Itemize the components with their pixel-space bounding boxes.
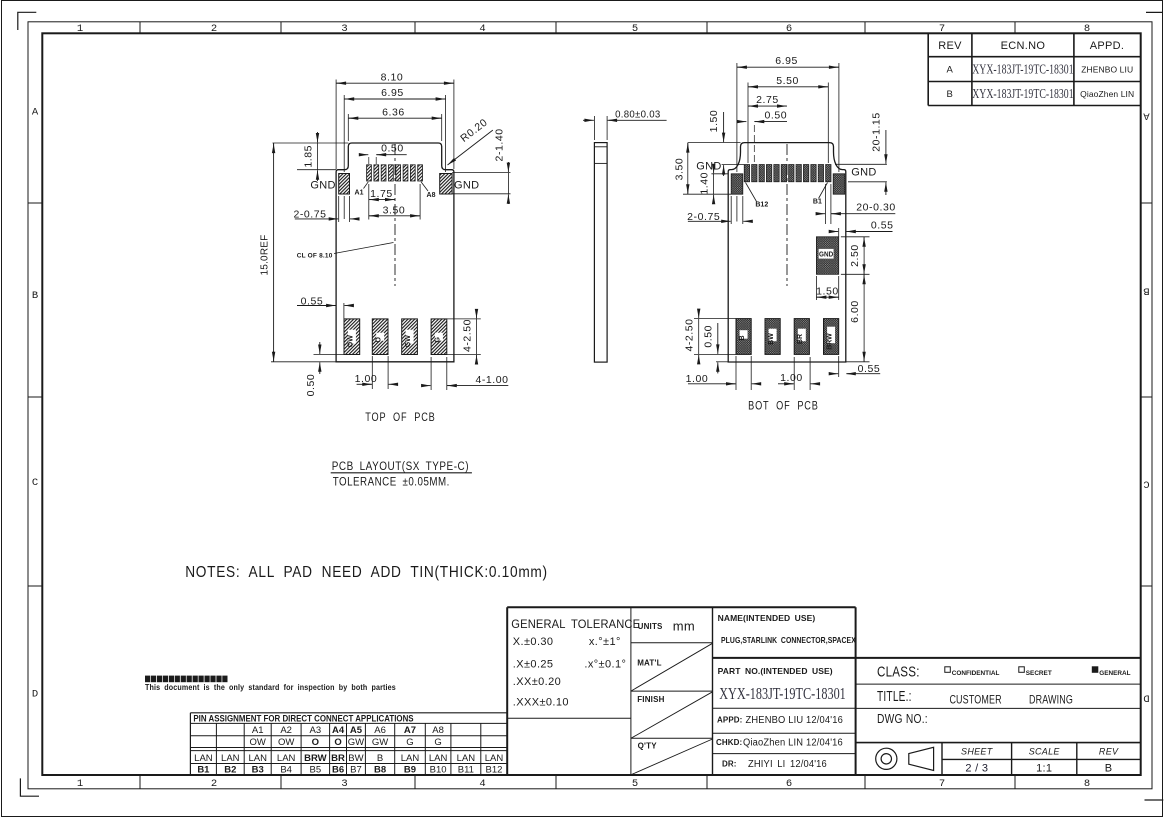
svg-text:BRW: BRW [304, 753, 327, 764]
svg-text:NOTES: ALL PAD NEED ADD TIN(TH: NOTES: ALL PAD NEED ADD TIN(THICK:0.10mm… [185, 564, 548, 581]
svg-text:A6: A6 [374, 725, 386, 736]
svg-text:A1: A1 [252, 725, 264, 736]
svg-text:B: B [32, 290, 38, 302]
svg-text:.X±0.25: .X±0.25 [513, 659, 554, 671]
svg-text:MAT'L: MAT'L [637, 659, 662, 668]
svg-text:4-2.50: 4-2.50 [461, 319, 473, 352]
svg-text:A5: A5 [350, 725, 363, 736]
svg-text:BR: BR [331, 753, 345, 764]
svg-text:B3: B3 [252, 765, 264, 776]
svg-text:GW: GW [348, 737, 364, 748]
svg-text:0.50: 0.50 [381, 142, 404, 154]
svg-text:B: B [377, 753, 383, 764]
svg-text:LAN: LAN [194, 753, 213, 764]
svg-text:PIN ASSIGNMENT FOR DIRECT CONN: PIN ASSIGNMENT FOR DIRECT CONNECT APPLIC… [193, 713, 413, 724]
svg-text:1.75: 1.75 [370, 188, 393, 200]
svg-text:This document is the only stan: This document is the only standard for i… [145, 683, 396, 692]
svg-text:B7: B7 [350, 765, 362, 776]
svg-text:G: G [434, 336, 441, 342]
svg-text:LAN: LAN [457, 753, 476, 764]
svg-text:SHEET: SHEET [961, 746, 994, 756]
svg-text:LAN: LAN [429, 753, 448, 764]
svg-text:1.50: 1.50 [816, 286, 839, 298]
svg-text:LAN: LAN [401, 753, 420, 764]
svg-text:G: G [406, 737, 413, 748]
svg-text:2-1.40: 2-1.40 [493, 128, 505, 161]
svg-text:3.50: 3.50 [674, 158, 686, 181]
svg-text:3: 3 [341, 23, 347, 35]
svg-text:CL OF 8.10: CL OF 8.10 [297, 252, 333, 259]
svg-text:4: 4 [479, 23, 485, 35]
svg-text:GENERAL: GENERAL [1099, 670, 1130, 677]
svg-text:A7: A7 [404, 725, 416, 736]
svg-text:7: 7 [939, 23, 945, 35]
svg-text:TOLERANCE ±0.05MM.: TOLERANCE ±0.05MM. [333, 476, 450, 489]
svg-text:B12: B12 [755, 201, 768, 208]
svg-text:GND: GND [851, 167, 876, 179]
svg-text:A3: A3 [310, 725, 322, 736]
svg-text:BW: BW [348, 753, 363, 764]
svg-text:B: B [1143, 285, 1149, 297]
svg-text:CUSTOMER: CUSTOMER [949, 694, 1001, 706]
svg-text:mm: mm [673, 619, 695, 634]
svg-text:4-1.00: 4-1.00 [475, 374, 508, 386]
svg-text:CHKD:: CHKD: [716, 738, 742, 747]
svg-text:BW: BW [768, 333, 775, 345]
svg-text:ZHIYI LI 12/04'16: ZHIYI LI 12/04'16 [748, 758, 827, 770]
svg-text:6: 6 [786, 778, 792, 790]
svg-text:3.50: 3.50 [383, 204, 406, 216]
svg-text:1: 1 [77, 23, 83, 35]
svg-text:B10: B10 [430, 765, 447, 776]
svg-text:BOT OF PCB: BOT OF PCB [748, 399, 819, 412]
svg-text:GW: GW [405, 335, 412, 347]
svg-text:APPD:: APPD: [717, 716, 742, 725]
svg-text:1.00: 1.00 [686, 373, 709, 385]
svg-text:PART NO.(INTENDED USE): PART NO.(INTENDED USE) [718, 666, 833, 676]
svg-text:3: 3 [341, 778, 347, 790]
svg-text:B9: B9 [404, 765, 416, 776]
svg-text:GW: GW [372, 737, 388, 748]
svg-text:A8: A8 [427, 192, 436, 199]
svg-text:5: 5 [632, 778, 638, 790]
svg-text:A8: A8 [432, 725, 444, 736]
svg-text:OW: OW [250, 737, 266, 748]
svg-text:A4: A4 [332, 725, 345, 736]
svg-text:GND: GND [696, 161, 721, 173]
svg-text:UNITS: UNITS [638, 622, 663, 631]
svg-text:Q'TY: Q'TY [638, 741, 658, 750]
svg-text:2 / 3: 2 / 3 [965, 762, 988, 774]
svg-text:1.40: 1.40 [698, 172, 710, 195]
svg-text:O: O [334, 737, 341, 748]
svg-text:O: O [376, 336, 383, 342]
svg-text:5.50: 5.50 [776, 75, 799, 87]
svg-text:2: 2 [211, 778, 217, 790]
svg-text:x.°±1°: x.°±1° [589, 636, 621, 648]
svg-text:LAN: LAN [485, 753, 504, 764]
svg-text:A: A [947, 64, 954, 75]
svg-text:.x°±0.1°: .x°±0.1° [584, 659, 626, 671]
svg-text:GND: GND [819, 251, 833, 259]
svg-text:B2: B2 [224, 765, 236, 776]
svg-text:X.±0.30: X.±0.30 [513, 636, 554, 648]
svg-text:LAN: LAN [277, 753, 296, 764]
svg-text:REV: REV [1099, 746, 1119, 756]
svg-text:2.75: 2.75 [756, 94, 779, 106]
svg-text:OW: OW [347, 335, 354, 347]
svg-text:A: A [32, 107, 39, 119]
svg-text:1.50: 1.50 [708, 110, 720, 133]
svg-text:ZHENBO LIU 12/04'16: ZHENBO LIU 12/04'16 [746, 715, 844, 727]
svg-text:B1: B1 [197, 765, 210, 776]
svg-text:QiaoZhen LIN 12/04'16: QiaoZhen LIN 12/04'16 [743, 737, 843, 749]
svg-text:15.0REF: 15.0REF [260, 235, 271, 276]
svg-text:B11: B11 [458, 765, 474, 776]
svg-text:TOP OF PCB: TOP OF PCB [365, 411, 435, 424]
svg-text:4: 4 [479, 778, 485, 790]
svg-text:B: B [1105, 762, 1113, 774]
svg-text:SECRET: SECRET [1026, 670, 1052, 677]
svg-text:SCALE: SCALE [1029, 746, 1061, 756]
svg-text:6.36: 6.36 [382, 106, 405, 118]
svg-text:B: B [739, 335, 746, 340]
svg-text:FINISH: FINISH [637, 695, 664, 704]
svg-text:BR: BR [797, 334, 804, 344]
svg-text:PLUG,STARLINK CONNECTOR,SPACEX: PLUG,STARLINK CONNECTOR,SPACEX [721, 636, 856, 646]
svg-text:0.55: 0.55 [871, 220, 894, 232]
svg-text:D: D [32, 688, 38, 700]
svg-text:ZHENBO LIU: ZHENBO LIU [1081, 64, 1133, 74]
svg-text:.XX±0.20: .XX±0.20 [513, 676, 561, 688]
svg-text:0.50: 0.50 [702, 325, 714, 348]
svg-text:B8: B8 [374, 765, 386, 776]
svg-text:6.95: 6.95 [775, 55, 798, 67]
svg-text:B: B [947, 89, 954, 100]
svg-text:1.00: 1.00 [355, 373, 378, 385]
svg-text:8: 8 [1084, 778, 1090, 790]
svg-text:O: O [312, 737, 319, 748]
svg-text:REV: REV [938, 40, 962, 52]
svg-text:B5: B5 [310, 765, 322, 776]
svg-text:APPD.: APPD. [1090, 40, 1125, 52]
svg-text:7: 7 [939, 778, 945, 790]
svg-text:4-2.50: 4-2.50 [684, 318, 696, 351]
svg-text:2.50: 2.50 [849, 244, 861, 267]
svg-text:A1: A1 [355, 189, 364, 196]
svg-text:6.95: 6.95 [381, 87, 404, 99]
svg-text:1.00: 1.00 [780, 372, 803, 384]
svg-text:DR:: DR: [722, 760, 737, 769]
svg-text:.XXX±0.10: .XXX±0.10 [513, 697, 569, 709]
svg-text:B12: B12 [486, 765, 503, 776]
svg-text:LAN: LAN [248, 753, 267, 764]
svg-text:G: G [434, 737, 441, 748]
svg-text:A: A [1143, 110, 1150, 122]
svg-text:CLASS:: CLASS: [877, 663, 920, 680]
svg-text:0.80±0.03: 0.80±0.03 [615, 109, 660, 120]
svg-text:CONFIDENTIAL: CONFIDENTIAL [952, 670, 1000, 677]
svg-text:GENERAL TOLERANCE: GENERAL TOLERANCE [511, 618, 640, 630]
svg-text:TITLE.:: TITLE.: [877, 688, 912, 704]
svg-text:B6: B6 [332, 765, 344, 776]
svg-text:8: 8 [1084, 23, 1090, 35]
svg-text:D: D [1143, 692, 1149, 704]
svg-text:5: 5 [632, 23, 638, 35]
svg-text:0.50: 0.50 [305, 374, 317, 397]
svg-text:1:1: 1:1 [1036, 762, 1052, 774]
svg-text:20-0.30: 20-0.30 [856, 202, 895, 214]
svg-text:8.10: 8.10 [381, 71, 404, 83]
svg-text:LAN: LAN [221, 753, 240, 764]
svg-text:6.00: 6.00 [849, 300, 861, 323]
svg-text:GND: GND [310, 180, 335, 192]
svg-text:NAME(INTENDED USE): NAME(INTENDED USE) [718, 613, 816, 623]
svg-text:BRW: BRW [827, 333, 834, 350]
svg-text:DWG NO.:: DWG NO.: [877, 713, 928, 726]
svg-text:C: C [32, 477, 38, 489]
svg-text:XYX-183JT-19TC-18301: XYX-183JT-19TC-18301 [719, 685, 846, 703]
svg-text:B1: B1 [813, 199, 822, 206]
svg-text:B4: B4 [280, 765, 292, 776]
svg-text:2: 2 [211, 23, 217, 35]
svg-text:OW: OW [278, 737, 294, 748]
svg-text:A2: A2 [280, 725, 292, 736]
svg-text:0.50: 0.50 [764, 110, 787, 122]
svg-text:1.85: 1.85 [303, 145, 315, 168]
svg-text:QiaoZhen LIN: QiaoZhen LIN [1080, 89, 1134, 99]
svg-text:1: 1 [77, 778, 83, 790]
svg-text:DRAWING: DRAWING [1029, 694, 1073, 706]
svg-text:PCB LAYOUT(SX TYPE-C): PCB LAYOUT(SX TYPE-C) [332, 460, 469, 473]
svg-text:ECN.NO: ECN.NO [1001, 40, 1046, 52]
svg-text:GND: GND [454, 180, 479, 192]
svg-text:C: C [1143, 478, 1149, 490]
svg-text:6: 6 [786, 23, 792, 35]
svg-text:XYX-183JT-19TC-18301: XYX-183JT-19TC-18301 [972, 61, 1073, 77]
svg-text:XYX-183JT-19TC-18301: XYX-183JT-19TC-18301 [972, 85, 1073, 101]
svg-text:20-1.15: 20-1.15 [871, 112, 883, 151]
